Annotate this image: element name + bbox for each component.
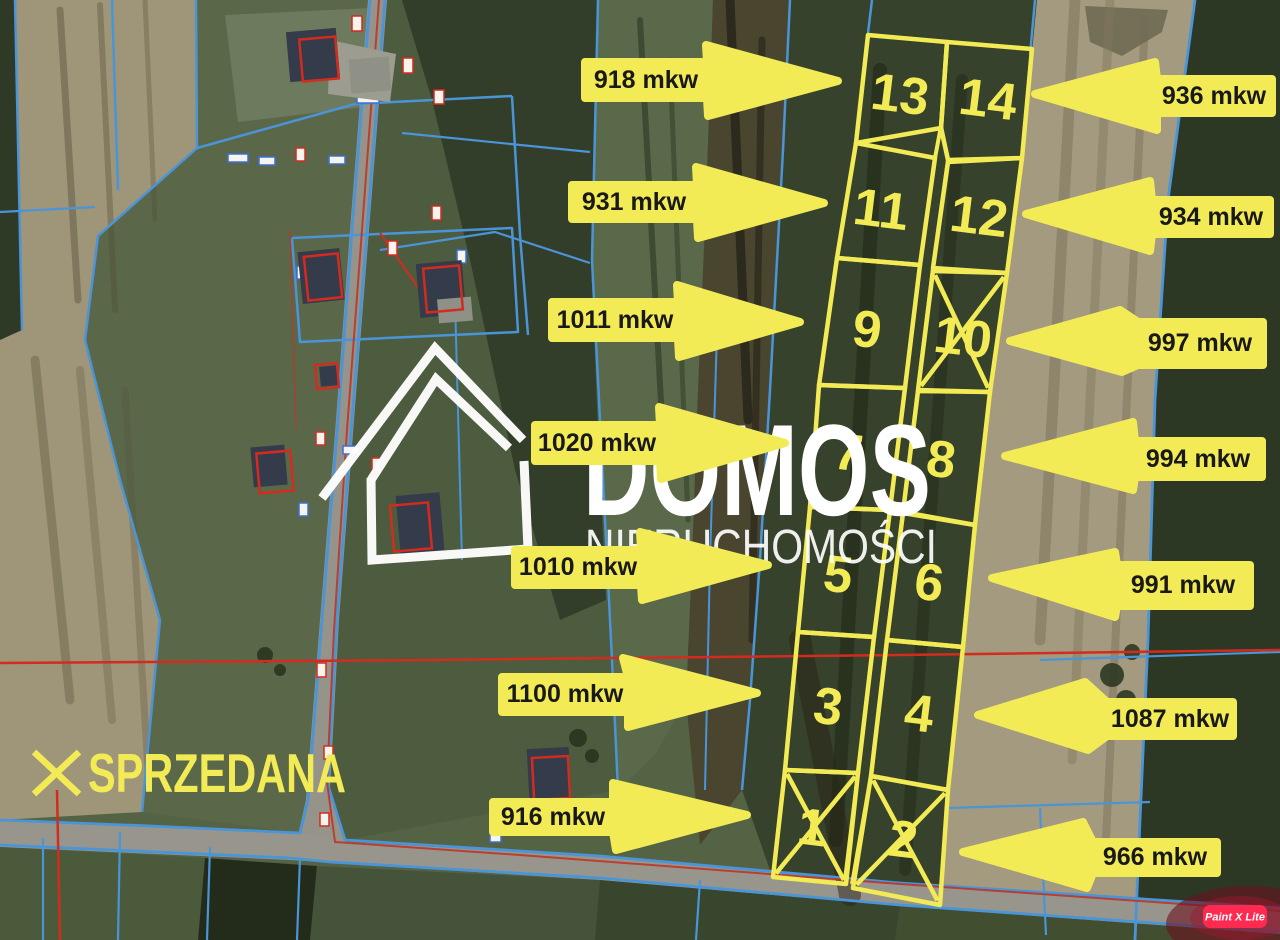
building-footprint [319,365,339,386]
map-tag [259,157,275,165]
map-tag [434,90,444,104]
area-label: 1010 mkw [519,553,638,581]
map-tag [228,154,248,162]
map-tag [432,206,441,220]
plot-number: 12 [947,185,1011,250]
area-label: 994 mkw [1146,445,1251,473]
map-tag [320,813,329,826]
plot-number: 13 [868,63,932,128]
plot-number: 14 [956,68,1021,133]
area-label: 934 mkw [1159,203,1264,231]
map-tag [316,432,325,445]
area-label: 916 mkw [501,803,606,831]
area-label: 1100 mkw [507,680,624,708]
building-footprint [349,56,392,93]
badge-label: Paint X Lite [1205,912,1265,924]
area-label: 1087 mkw [1111,705,1230,733]
map-canvas: 1314111291078563412 DOMOS NIERUCHOMOŚCI … [0,0,1280,940]
map-tag [403,58,413,73]
area-label: 991 mkw [1131,571,1236,599]
map-tag [329,156,345,164]
building-footprint [396,492,445,554]
sold-legend-label: SPRZEDANA [88,742,346,804]
area-label: 1020 mkw [538,429,657,457]
aerial-map-image: 1314111291078563412 DOMOS NIERUCHOMOŚCI … [0,0,1280,940]
area-label: 918 mkw [594,66,699,94]
map-tag [388,241,397,255]
plot-number: 11 [850,178,912,242]
map-tag [317,663,326,677]
area-label: 1011 mkw [557,306,674,334]
area-label: 997 mkw [1148,329,1253,357]
plot-number: 10 [931,306,995,371]
map-tag [352,16,362,31]
map-tag [296,148,305,161]
area-label: 966 mkw [1103,843,1208,871]
area-label: 936 mkw [1162,82,1267,110]
map-tag [299,503,308,516]
area-label: 931 mkw [582,188,687,216]
